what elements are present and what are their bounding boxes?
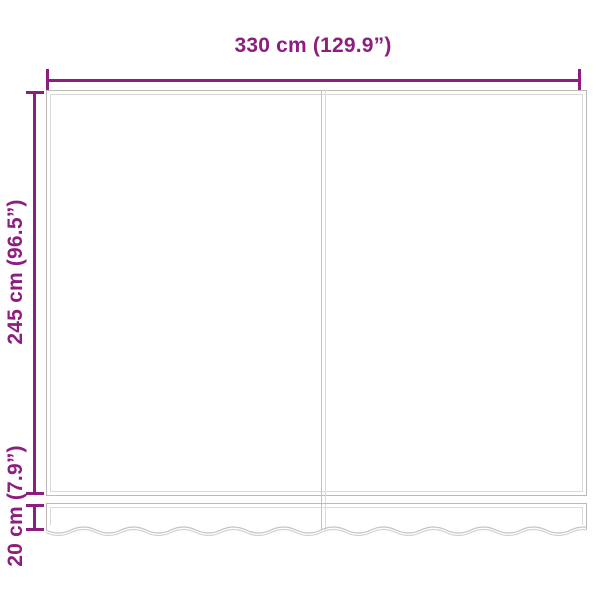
dimension-diagram: 330 cm (129.9”) 245 cm (96.5”) 20 cm (7.… — [0, 0, 600, 600]
fabric-center-seam — [321, 90, 322, 530]
valance-dimension-tick-bottom — [26, 528, 44, 531]
height-dimension-tick-top — [26, 91, 44, 94]
valance-dimension-label: 20 cm (7.9”) — [4, 445, 28, 566]
height-dimension-tick-bottom — [26, 492, 44, 495]
fabric-center-seam-highlight — [325, 90, 326, 530]
fabric-panel — [46, 90, 587, 496]
width-dimension-tick-left — [46, 69, 49, 91]
width-dimension-tick-right — [578, 69, 581, 91]
fabric-panel-inner-seam — [50, 94, 583, 492]
valance-dimension-line — [33, 504, 36, 531]
valance-wavy-edge — [46, 503, 587, 545]
width-dimension-label: 330 cm (129.9”) — [234, 34, 391, 58]
height-dimension-line — [33, 91, 36, 495]
width-dimension-line — [46, 79, 581, 82]
height-dimension-label: 245 cm (96.5”) — [4, 199, 28, 344]
valance-dimension-tick-top — [26, 504, 44, 507]
